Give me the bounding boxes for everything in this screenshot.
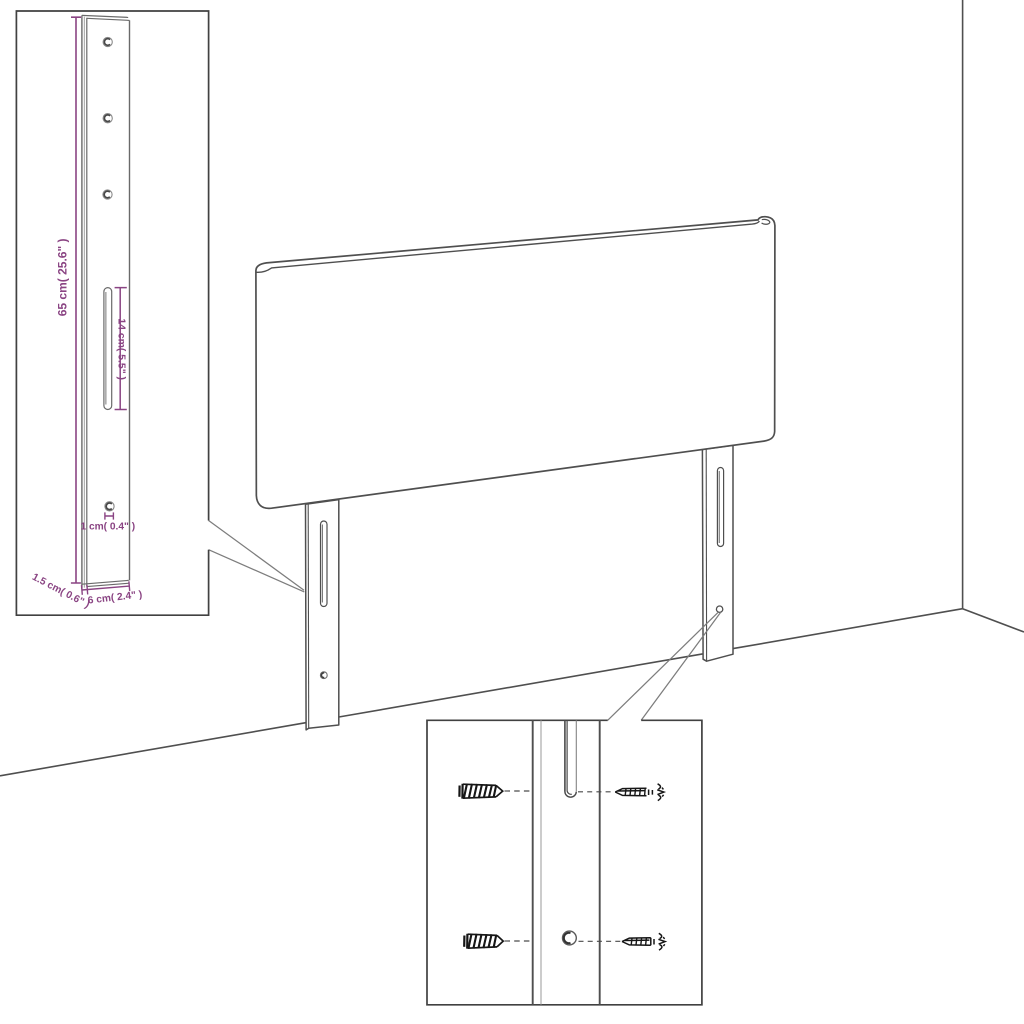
svg-text:1 cm( 0.4" ): 1 cm( 0.4" ): [80, 522, 135, 533]
svg-text:6 cm( 2.4" ): 6 cm( 2.4" ): [87, 589, 143, 606]
svg-text:65 cm( 25.6" ): 65 cm( 25.6" ): [56, 239, 70, 317]
svg-text:14 cm( 5.5" ): 14 cm( 5.5" ): [115, 318, 126, 380]
